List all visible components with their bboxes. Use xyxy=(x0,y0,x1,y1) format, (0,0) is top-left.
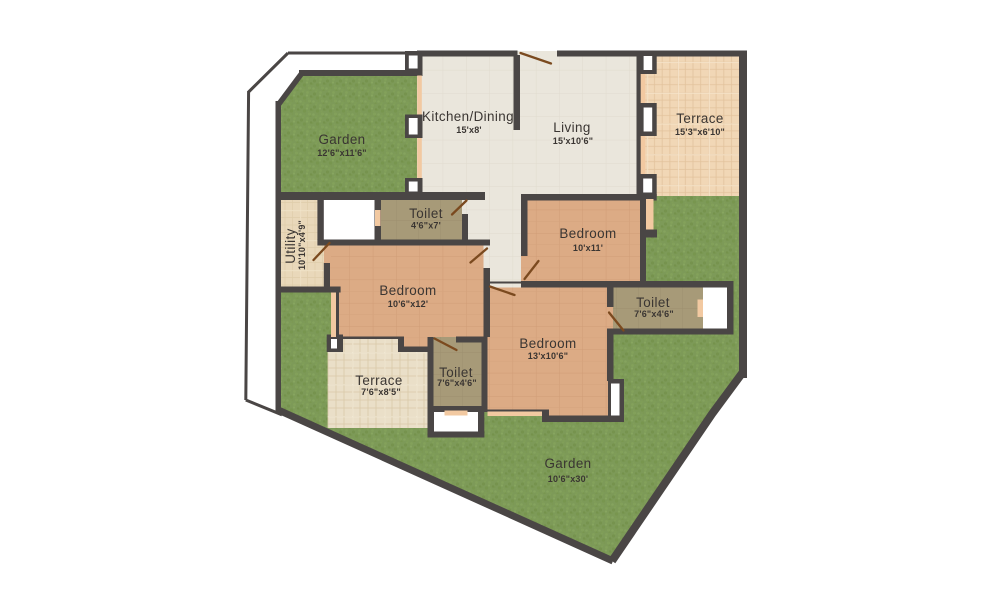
svg-text:Toilet: Toilet xyxy=(636,295,670,310)
svg-text:Utility: Utility xyxy=(283,228,298,264)
svg-text:4'6"x7': 4'6"x7' xyxy=(411,221,441,231)
svg-text:15'3"x6'10": 15'3"x6'10" xyxy=(675,127,725,137)
svg-text:15'x8': 15'x8' xyxy=(456,125,482,135)
svg-text:7'6"x4'6": 7'6"x4'6" xyxy=(437,378,477,388)
svg-text:Bedroom: Bedroom xyxy=(519,336,576,351)
svg-text:Terrace: Terrace xyxy=(355,373,402,388)
svg-text:Toilet: Toilet xyxy=(409,206,443,221)
svg-text:Bedroom: Bedroom xyxy=(559,226,616,241)
svg-text:15'x10'6": 15'x10'6" xyxy=(553,136,593,146)
svg-text:7'6"x4'6": 7'6"x4'6" xyxy=(634,309,674,319)
svg-text:10'10"x4'9": 10'10"x4'9" xyxy=(297,220,307,270)
svg-text:7'6"x8'5": 7'6"x8'5" xyxy=(361,387,401,397)
svg-text:Bedroom: Bedroom xyxy=(379,283,436,298)
svg-text:10'x11': 10'x11' xyxy=(573,243,603,253)
svg-text:10'6"x30': 10'6"x30' xyxy=(548,474,588,484)
svg-text:Kitchen/Dining: Kitchen/Dining xyxy=(422,109,514,124)
svg-text:Garden: Garden xyxy=(544,456,591,471)
svg-text:Garden: Garden xyxy=(318,132,365,147)
svg-text:10'6"x12': 10'6"x12' xyxy=(388,299,428,309)
svg-text:12'6"x11'6": 12'6"x11'6" xyxy=(317,148,367,158)
svg-text:13'x10'6": 13'x10'6" xyxy=(528,351,568,361)
svg-text:Living: Living xyxy=(553,120,590,135)
svg-text:Terrace: Terrace xyxy=(676,111,723,126)
